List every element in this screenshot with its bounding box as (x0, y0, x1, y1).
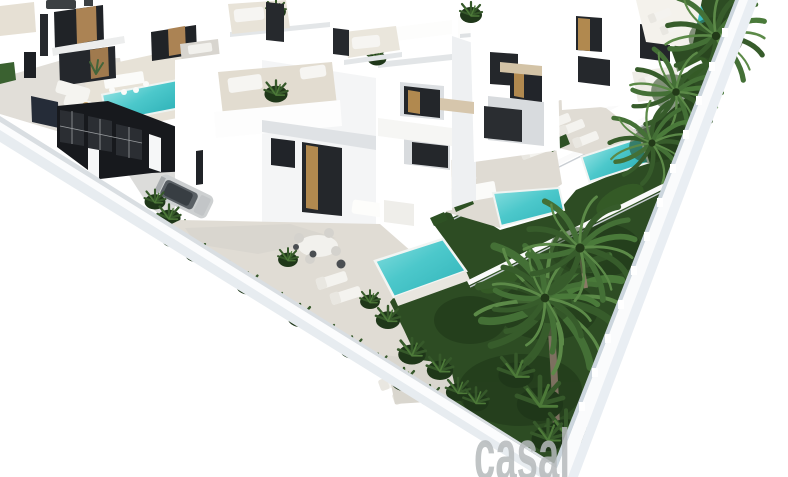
svg-text:casal: casal (474, 415, 570, 477)
